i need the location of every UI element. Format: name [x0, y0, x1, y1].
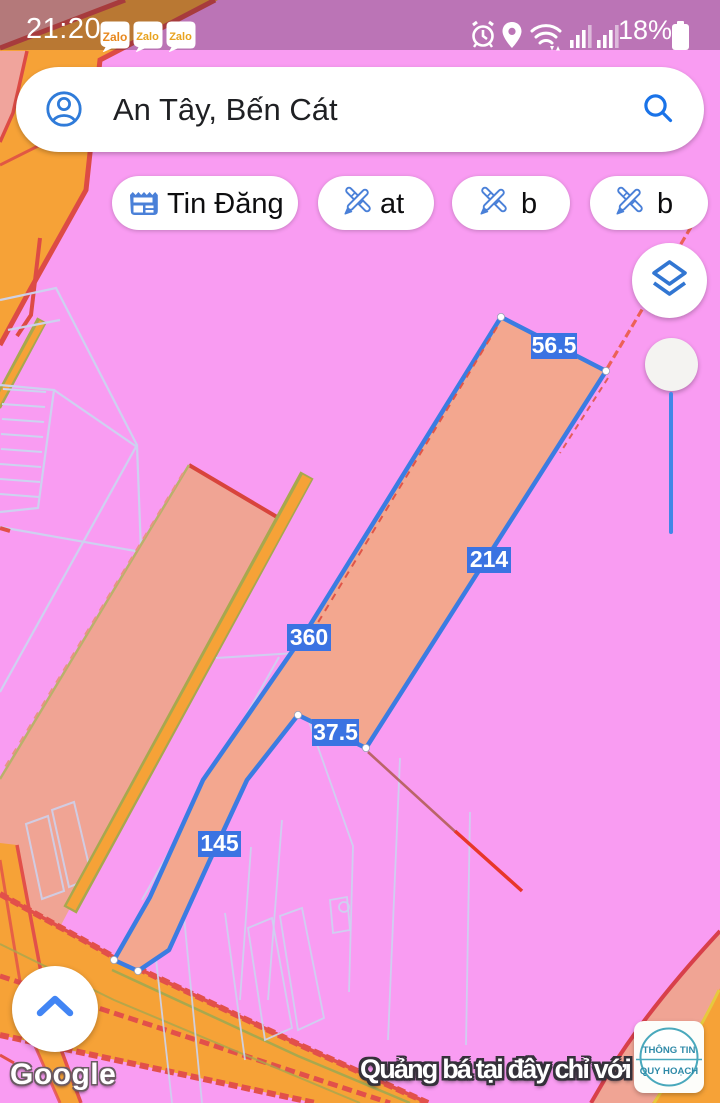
svg-text:360: 360	[290, 624, 328, 650]
svg-text:214: 214	[470, 546, 509, 572]
svg-text:145: 145	[200, 830, 239, 856]
svg-text:Zalo: Zalo	[136, 31, 159, 43]
svg-text:THÔNG TIN: THÔNG TIN	[643, 1044, 696, 1056]
svg-text:QUY HOẠCH: QUY HOẠCH	[640, 1066, 699, 1077]
svg-text:Zalo: Zalo	[169, 31, 192, 43]
svg-text:37.5: 37.5	[313, 719, 358, 745]
svg-text:Zalo: Zalo	[103, 30, 128, 44]
svg-text:56.5: 56.5	[532, 332, 577, 358]
